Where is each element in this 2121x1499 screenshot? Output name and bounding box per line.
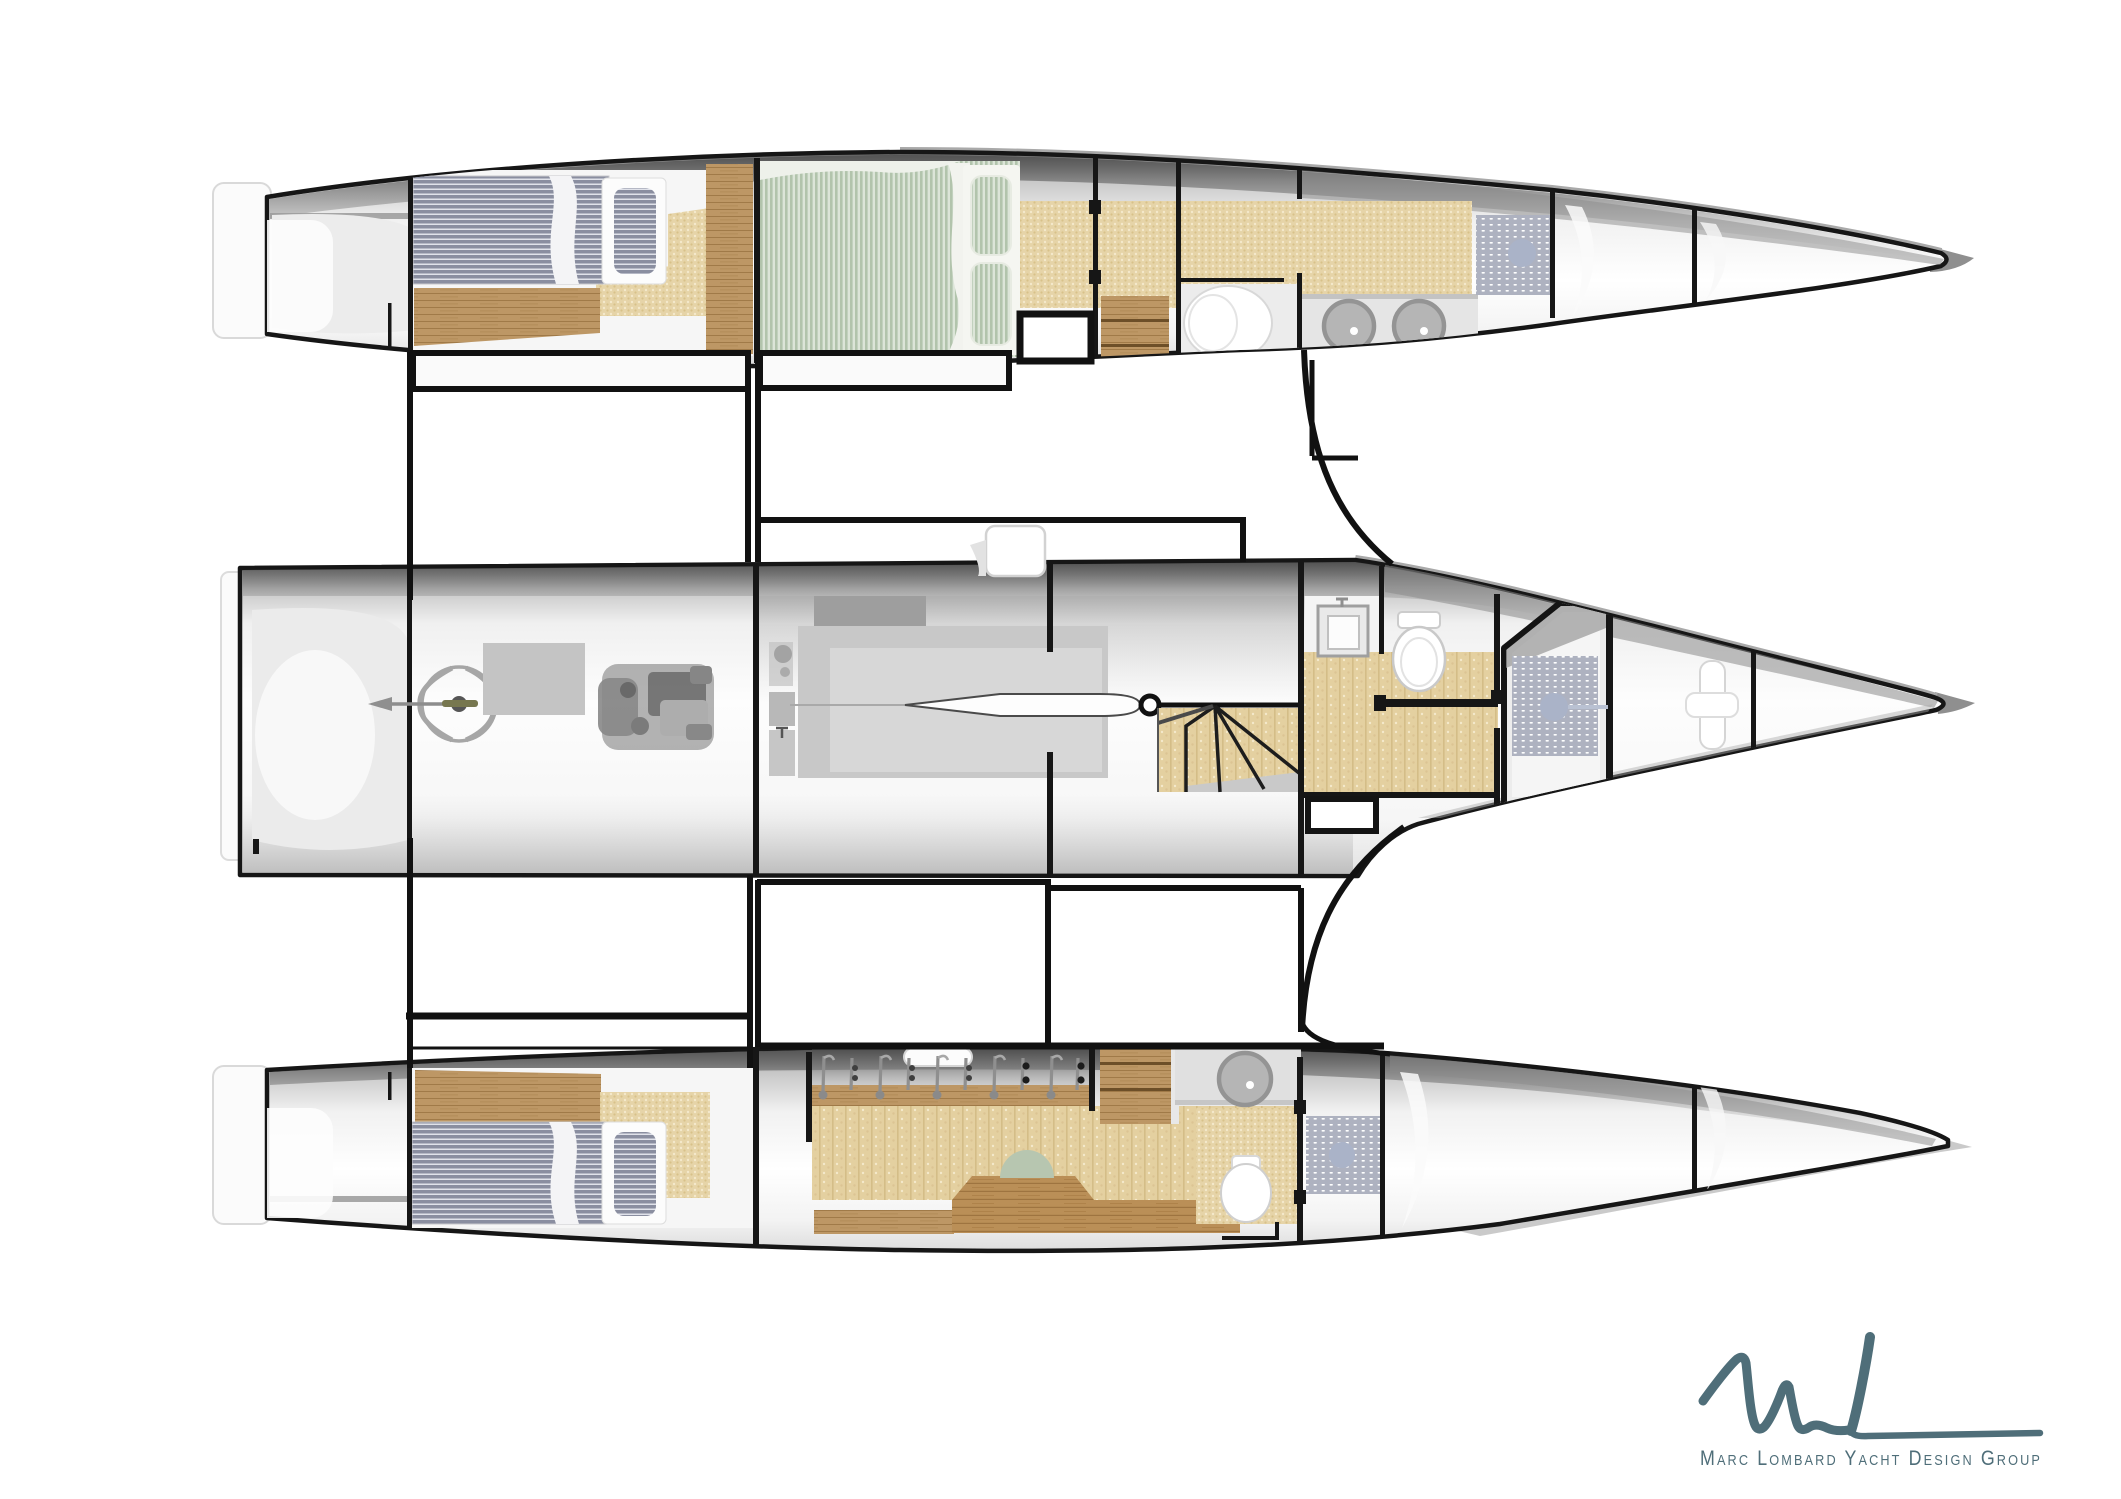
svg-text:Marc Lombard Yacht Design Grou: Marc Lombard Yacht Design Group — [1700, 1447, 2042, 1470]
